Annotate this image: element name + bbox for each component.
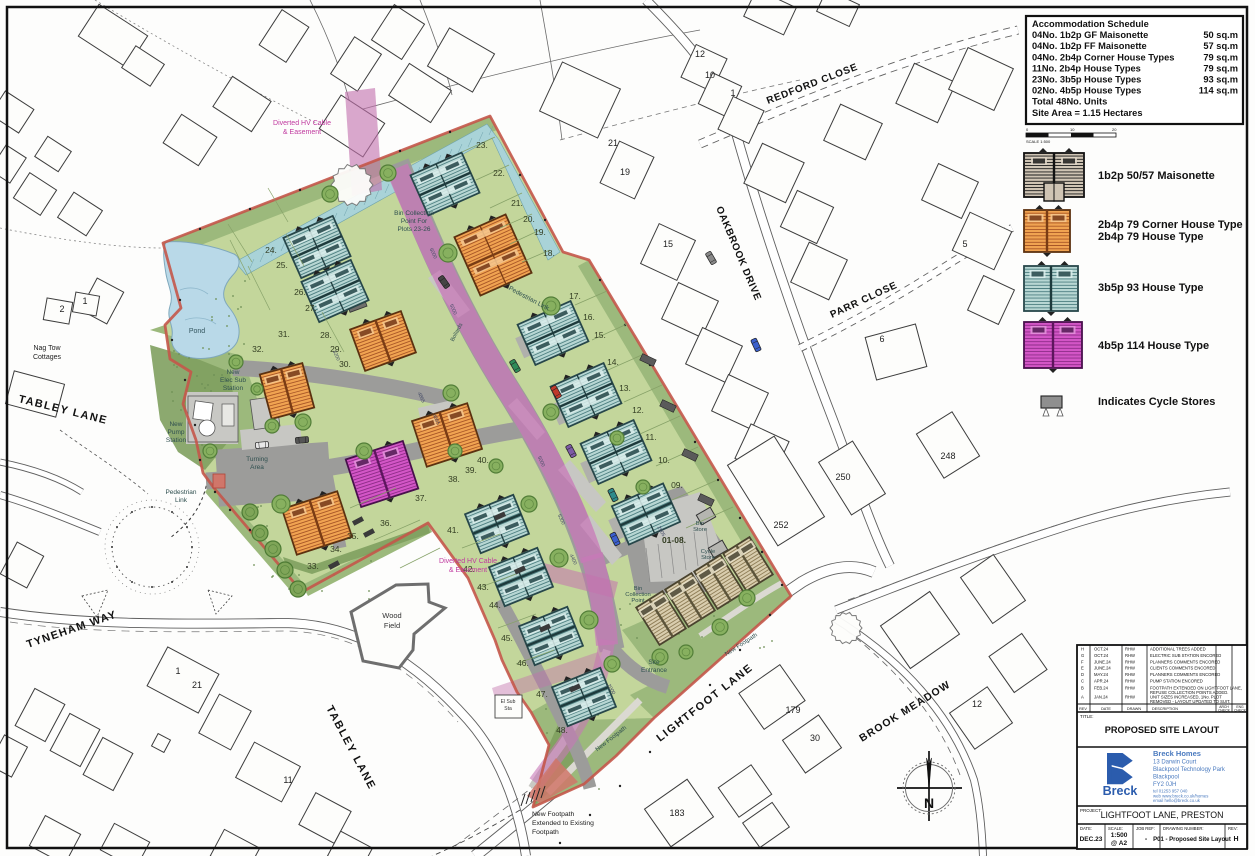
- svg-text:Station: Station: [166, 437, 187, 444]
- svg-text:OCT.24: OCT.24: [1094, 647, 1109, 652]
- svg-text:Pedestrian: Pedestrian: [165, 489, 196, 496]
- svg-text:El Sub: El Sub: [501, 699, 516, 705]
- svg-text:2: 2: [59, 304, 64, 314]
- svg-text:5: 5: [962, 239, 967, 249]
- svg-text:10: 10: [705, 70, 715, 80]
- svg-text:48.: 48.: [556, 725, 568, 735]
- svg-text:11.: 11.: [645, 432, 656, 442]
- svg-text:13 Darwin Court: 13 Darwin Court: [1153, 760, 1197, 766]
- svg-text:Plots 23-26: Plots 23-26: [398, 226, 431, 233]
- svg-text:DESCRIPTION: DESCRIPTION: [1152, 707, 1178, 711]
- svg-text:183: 183: [669, 808, 684, 818]
- svg-text:D: D: [1081, 672, 1084, 677]
- svg-text:Site Area = 1.15 Hectares: Site Area = 1.15 Hectares: [1032, 108, 1143, 118]
- svg-text:250: 250: [835, 472, 850, 482]
- svg-text:13.: 13.: [619, 383, 631, 393]
- svg-text:35.: 35.: [347, 531, 359, 541]
- svg-text:31.: 31.: [278, 329, 290, 339]
- svg-text:21: 21: [608, 138, 618, 148]
- svg-text:N: N: [924, 795, 934, 811]
- svg-text:20.: 20.: [523, 214, 535, 224]
- svg-text:TITLE:: TITLE:: [1080, 714, 1094, 719]
- svg-text:Bin Collection: Bin Collection: [394, 210, 434, 217]
- svg-text:11No. 2b4p House Types: 11No. 2b4p House Types: [1032, 63, 1141, 73]
- svg-text:DRAWING NUMBER:: DRAWING NUMBER:: [1163, 826, 1204, 831]
- svg-text:E: E: [1081, 666, 1084, 671]
- svg-text:45.: 45.: [501, 633, 513, 643]
- svg-text:252: 252: [773, 520, 788, 530]
- svg-text:Site: Site: [648, 659, 660, 666]
- svg-text:34.: 34.: [330, 544, 342, 554]
- svg-text:10: 10: [1070, 127, 1075, 132]
- svg-text:22.: 22.: [493, 168, 505, 178]
- svg-text:30: 30: [810, 733, 820, 743]
- svg-text:248: 248: [940, 451, 955, 461]
- svg-text:23No. 3b5p House Types: 23No. 3b5p House Types: [1032, 75, 1141, 85]
- svg-text:RHW: RHW: [1125, 647, 1135, 652]
- svg-text:26.: 26.: [294, 287, 306, 297]
- svg-text:H: H: [1081, 647, 1084, 652]
- svg-text:27.: 27.: [305, 303, 317, 313]
- svg-text:REV:: REV:: [1228, 826, 1238, 831]
- svg-text:RHW: RHW: [1125, 672, 1135, 677]
- svg-text:& Easement: & Easement: [449, 567, 487, 574]
- svg-text:Diverted HV Cable: Diverted HV Cable: [439, 558, 497, 565]
- svg-text:04No. 1b2p FF Maisonette: 04No. 1b2p FF Maisonette: [1032, 41, 1147, 51]
- svg-text:3b5p 93 House Type: 3b5p 93 House Type: [1098, 282, 1204, 294]
- svg-text:28.: 28.: [320, 330, 332, 340]
- svg-text:14.: 14.: [607, 357, 619, 367]
- svg-text:79 sq.m: 79 sq.m: [1203, 63, 1238, 73]
- svg-text:47.: 47.: [536, 689, 548, 699]
- svg-text:DATE:: DATE:: [1080, 826, 1092, 831]
- svg-text:Nag Tow: Nag Tow: [33, 345, 61, 352]
- svg-text:RHW: RHW: [1125, 659, 1135, 664]
- svg-text:PROPOSED SITE LAYOUT: PROPOSED SITE LAYOUT: [1105, 725, 1220, 735]
- svg-text:REMOVED - LAYOUT UPDATED TO SU: REMOVED - LAYOUT UPDATED TO SUIT.: [1150, 699, 1230, 704]
- svg-text:21.: 21.: [511, 198, 523, 208]
- svg-text:G: G: [1081, 653, 1084, 658]
- svg-text:Store: Store: [701, 555, 715, 561]
- svg-text:12.: 12.: [632, 405, 644, 415]
- svg-text:MAY.24: MAY.24: [1094, 672, 1109, 677]
- svg-text:Sta: Sta: [504, 706, 512, 712]
- svg-text:Blackpool Technology Park: Blackpool Technology Park: [1153, 767, 1226, 773]
- svg-text:F: F: [1081, 659, 1084, 664]
- svg-text:33.: 33.: [307, 561, 319, 571]
- svg-text:93 sq.m: 93 sq.m: [1203, 75, 1238, 85]
- svg-text:Store: Store: [693, 527, 707, 533]
- svg-text:C: C: [1081, 679, 1084, 684]
- svg-text:Station: Station: [223, 385, 244, 392]
- svg-text:Point: Point: [631, 598, 645, 604]
- svg-text:ADDITIONAL TREES ADDED: ADDITIONAL TREES ADDED: [1150, 647, 1206, 652]
- svg-text:APR.24: APR.24: [1094, 679, 1109, 684]
- svg-text:B: B: [1081, 686, 1084, 691]
- svg-text:Point For: Point For: [401, 218, 428, 225]
- svg-text:CHECK: CHECK: [1234, 709, 1247, 713]
- svg-text:44.: 44.: [489, 600, 501, 610]
- svg-text:New Footpath: New Footpath: [532, 811, 575, 818]
- svg-text:09.: 09.: [671, 480, 683, 490]
- svg-text:41.: 41.: [447, 525, 459, 535]
- svg-text:RHW: RHW: [1125, 679, 1135, 684]
- svg-text:PUMP STATION ENCORED: PUMP STATION ENCORED: [1150, 679, 1203, 684]
- svg-text:21: 21: [192, 680, 202, 690]
- svg-text:JOB REF:: JOB REF:: [1136, 826, 1155, 831]
- svg-text:79 sq.m: 79 sq.m: [1203, 52, 1238, 62]
- svg-text:Diverted HV Cable: Diverted HV Cable: [273, 120, 331, 127]
- svg-text:FY2 0JH: FY2 0JH: [1153, 782, 1176, 788]
- svg-text:1: 1: [82, 296, 87, 306]
- svg-text:PROJECT:: PROJECT:: [1080, 808, 1102, 813]
- svg-text:PLANNERS COMMENTS ENCORED: PLANNERS COMMENTS ENCORED: [1150, 672, 1220, 677]
- svg-text:Link: Link: [175, 497, 188, 504]
- svg-text:RHW: RHW: [1125, 666, 1135, 671]
- svg-text:Field: Field: [384, 621, 400, 630]
- svg-text:ELECTRIC SUB STATION ENCORED: ELECTRIC SUB STATION ENCORED: [1150, 653, 1221, 658]
- svg-text:04No. 1b2p GF Maisonette: 04No. 1b2p GF Maisonette: [1032, 30, 1148, 40]
- svg-text:179: 179: [785, 705, 800, 715]
- svg-text:Breck Homes: Breck Homes: [1153, 749, 1201, 758]
- svg-text:Blackpool: Blackpool: [1153, 775, 1179, 781]
- svg-text:12: 12: [972, 699, 982, 709]
- svg-text:02No. 4b5p House Types: 02No. 4b5p House Types: [1032, 86, 1141, 96]
- svg-text:DATE: DATE: [1101, 707, 1111, 711]
- svg-text:CLIENTS COMMENTS ENCORED: CLIENTS COMMENTS ENCORED: [1150, 666, 1215, 671]
- svg-text:15: 15: [663, 239, 673, 249]
- svg-text:New: New: [226, 369, 239, 376]
- svg-text:DEC.23: DEC.23: [1080, 836, 1103, 843]
- svg-text:Wood: Wood: [382, 611, 401, 620]
- svg-text:Breck: Breck: [1103, 784, 1138, 798]
- svg-text:18.: 18.: [543, 248, 555, 258]
- svg-text:JUNE.24: JUNE.24: [1094, 666, 1111, 671]
- svg-text:@ A2: @ A2: [1111, 840, 1128, 847]
- svg-text:SCALE:: SCALE:: [1108, 826, 1123, 831]
- svg-text:email hello@breck.co.uk: email hello@breck.co.uk: [1153, 798, 1201, 803]
- svg-text:19: 19: [620, 167, 630, 177]
- svg-text:PLANNERS COMMENTS ENCORED: PLANNERS COMMENTS ENCORED: [1150, 659, 1220, 664]
- svg-text:10.: 10.: [658, 455, 670, 465]
- svg-text:43.: 43.: [477, 582, 489, 592]
- svg-text:DRAWN: DRAWN: [1127, 707, 1141, 711]
- svg-text:25.: 25.: [276, 260, 288, 270]
- svg-text:Pond: Pond: [189, 328, 205, 335]
- svg-text:16.: 16.: [583, 312, 595, 322]
- svg-text:RHW: RHW: [1125, 686, 1135, 691]
- svg-text:Area: Area: [250, 464, 264, 471]
- svg-text:Total 48No. Units: Total 48No. Units: [1032, 97, 1107, 107]
- svg-text:37.: 37.: [415, 493, 427, 503]
- svg-text:REV: REV: [1079, 707, 1087, 711]
- svg-text:CHECK: CHECK: [1218, 709, 1231, 713]
- svg-text:24.: 24.: [265, 245, 277, 255]
- svg-text:Extended to Existing: Extended to Existing: [532, 820, 594, 827]
- svg-text:2b4p 79 Corner House Type: 2b4p 79 Corner House Type: [1098, 219, 1243, 231]
- svg-text:LIGHTFOOT LANE, PRESTON: LIGHTFOOT LANE, PRESTON: [1101, 810, 1224, 820]
- svg-text:20: 20: [1112, 127, 1117, 132]
- svg-text:RHW: RHW: [1125, 695, 1135, 700]
- svg-text:Turning: Turning: [246, 456, 268, 463]
- svg-text:1b2p 50/57 Maisonette: 1b2p 50/57 Maisonette: [1098, 170, 1215, 182]
- svg-text:JAN.24: JAN.24: [1094, 695, 1108, 700]
- svg-text:Entrance: Entrance: [641, 667, 667, 674]
- svg-text:32.: 32.: [252, 344, 264, 354]
- svg-text:15.: 15.: [594, 330, 606, 340]
- svg-text:1:500: 1:500: [1111, 832, 1128, 839]
- svg-text:SCALE 1:500: SCALE 1:500: [1026, 139, 1051, 144]
- svg-text:P01 - Proposed Site Layout: P01 - Proposed Site Layout: [1153, 837, 1231, 843]
- svg-text:6: 6: [879, 334, 884, 344]
- svg-text:04No. 2b4p Corner House Types: 04No. 2b4p Corner House Types: [1032, 52, 1174, 62]
- svg-text:Footpath: Footpath: [532, 829, 559, 836]
- svg-text:114 sq.m: 114 sq.m: [1199, 86, 1238, 96]
- svg-text:Cottages: Cottages: [33, 354, 62, 361]
- svg-text:JUNE.24: JUNE.24: [1094, 659, 1111, 664]
- svg-text:46.: 46.: [517, 658, 529, 668]
- svg-text:17.: 17.: [569, 291, 581, 301]
- svg-text:38.: 38.: [448, 474, 460, 484]
- svg-text:New: New: [169, 421, 182, 428]
- svg-text:H: H: [1233, 836, 1238, 843]
- svg-text:39.: 39.: [465, 465, 477, 475]
- svg-text:1: 1: [175, 666, 180, 676]
- svg-text:Elec Sub: Elec Sub: [220, 377, 246, 384]
- svg-text:01-08.: 01-08.: [662, 535, 686, 545]
- svg-text:A: A: [1081, 695, 1084, 700]
- svg-text:2b4p 79 House Type: 2b4p 79 House Type: [1098, 231, 1204, 243]
- svg-text:RHW: RHW: [1125, 653, 1135, 658]
- svg-text:OCT.24: OCT.24: [1094, 653, 1109, 658]
- svg-text:30.: 30.: [339, 359, 351, 369]
- svg-text:Pump: Pump: [168, 429, 185, 436]
- svg-text:36.: 36.: [380, 518, 392, 528]
- svg-text:& Easement: & Easement: [283, 129, 321, 136]
- svg-text:11: 11: [283, 775, 292, 785]
- svg-text:Accommodation Schedule: Accommodation Schedule: [1032, 19, 1149, 29]
- svg-text:50 sq.m: 50 sq.m: [1203, 30, 1238, 40]
- svg-text:40.: 40.: [477, 455, 489, 465]
- svg-text:23.: 23.: [476, 140, 488, 150]
- svg-text:57 sq.m: 57 sq.m: [1203, 41, 1238, 51]
- svg-text:1: 1: [730, 88, 735, 98]
- svg-text:Indicates Cycle Stores: Indicates Cycle Stores: [1098, 396, 1215, 408]
- svg-text:12: 12: [695, 49, 705, 59]
- svg-text:FEB.24: FEB.24: [1094, 686, 1109, 691]
- svg-text:19.: 19.: [534, 227, 546, 237]
- svg-text:4b5p 114 House Type: 4b5p 114 House Type: [1098, 340, 1209, 352]
